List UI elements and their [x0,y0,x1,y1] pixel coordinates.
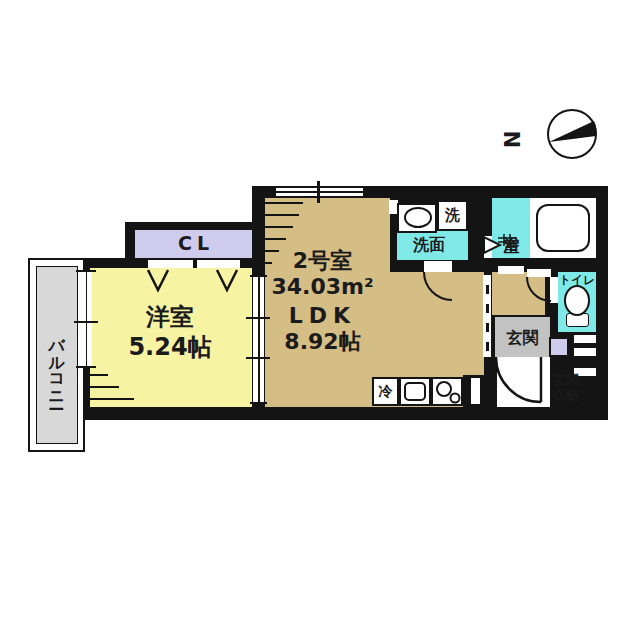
unit-layout-type-label: LDK [250,304,395,328]
shelf-mark-2 [574,348,596,356]
washer-label: 洗 [437,207,468,224]
toilet-bowl [564,285,590,316]
unit-layout-size-label: 8.92帖 [250,330,395,354]
floor-plan: 2号室 34.03m² LDK 8.92帖 洋室 5.24帖 CL バルコニー … [0,0,640,640]
closet-opening-left [148,260,193,268]
ldk-top-window-cap-right [363,186,365,198]
kitchen-sink-basin [404,382,426,401]
ldk-top-window-tick [317,181,320,203]
closet-label: CL [140,233,252,254]
west-window-cap-bottom [76,366,96,368]
vanity-sink [404,207,432,228]
passage-dash-3 [486,323,489,332]
toilet-label: トイレ [558,274,596,287]
compass-north-label: N [502,128,525,152]
ldk-top-window-cap-left [274,186,276,198]
passage-dash-2 [486,304,489,313]
ldk-top-window-midline [275,191,365,193]
toilet-doorway [550,277,558,303]
toilet-door-leaf [527,269,551,277]
compass-icon [548,110,596,158]
partition-cap-bottom [250,402,267,404]
entrance-storage-label: 玄関収納 [551,372,581,402]
bathtub [536,204,590,252]
hallway-floor [492,272,545,315]
western-room-label: 洋室 [95,304,245,330]
stove-box [431,377,463,406]
corner-wall-notch [471,378,480,404]
refrigerator-label: 冷 [372,384,399,399]
wall-corner-block [463,375,497,407]
balcony-label: バルコニー [48,288,66,438]
bathroom-door-opening [484,236,492,258]
hallway-top-opening [498,266,524,274]
washroom-door-leaf [424,261,452,272]
entrance-storage-box [549,337,569,357]
western-room-size-label: 5.24帖 [95,334,245,360]
west-window-cap-top [76,270,96,272]
bathroom-label: 浴室 [503,201,521,245]
unit-area-label: 34.03m² [250,275,395,299]
passage-dash-1 [486,285,489,294]
entrance-step-floor [497,357,550,407]
shelf-mark-1 [574,335,596,343]
washroom-label: 洗面 [396,236,462,254]
entrance-label: 玄関 [495,329,550,347]
unit-name-label: 2号室 [250,249,395,273]
partition-tick-2 [246,357,270,359]
closet-opening-right [197,260,240,268]
west-window-midline [86,272,88,368]
passage-dash-4 [486,342,489,351]
